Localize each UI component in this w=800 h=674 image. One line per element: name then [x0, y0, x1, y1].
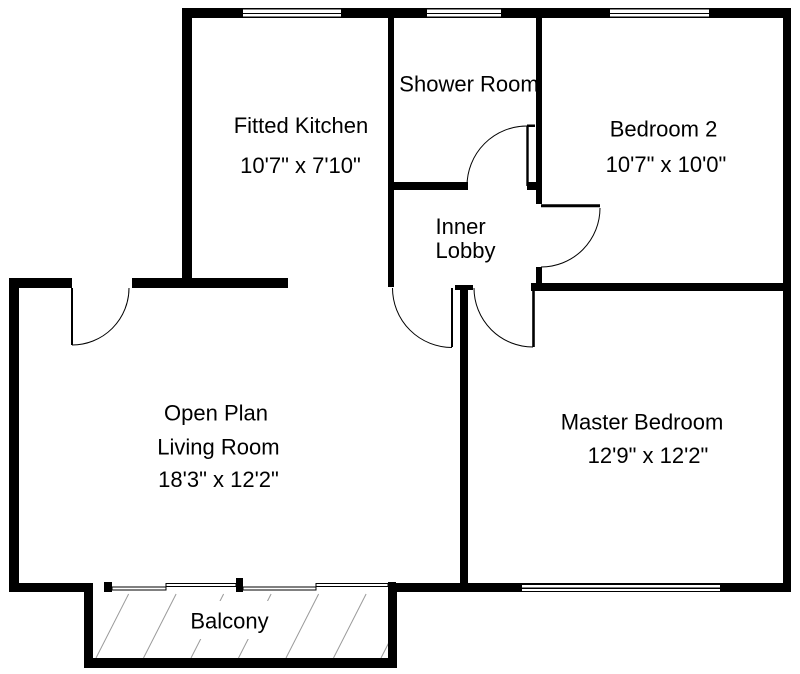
svg-text:10'7" x 7'10": 10'7" x 7'10" [240, 153, 361, 178]
svg-text:Inner: Inner [436, 214, 486, 239]
svg-text:Living Room: Living Room [157, 435, 279, 460]
svg-text:Lobby: Lobby [436, 238, 496, 263]
svg-text:Bedroom 2: Bedroom 2 [610, 117, 718, 142]
svg-text:Open Plan: Open Plan [164, 401, 268, 426]
svg-text:18'3" x 12'2": 18'3" x 12'2" [158, 467, 279, 492]
svg-text:12'9" x 12'2": 12'9" x 12'2" [588, 443, 709, 468]
svg-text:Balcony: Balcony [190, 609, 268, 634]
svg-text:Master Bedroom: Master Bedroom [561, 410, 724, 435]
svg-text:Fitted Kitchen: Fitted Kitchen [234, 113, 369, 138]
svg-text:Shower Room: Shower Room [399, 72, 538, 97]
svg-text:10'7" x 10'0": 10'7" x 10'0" [606, 152, 727, 177]
